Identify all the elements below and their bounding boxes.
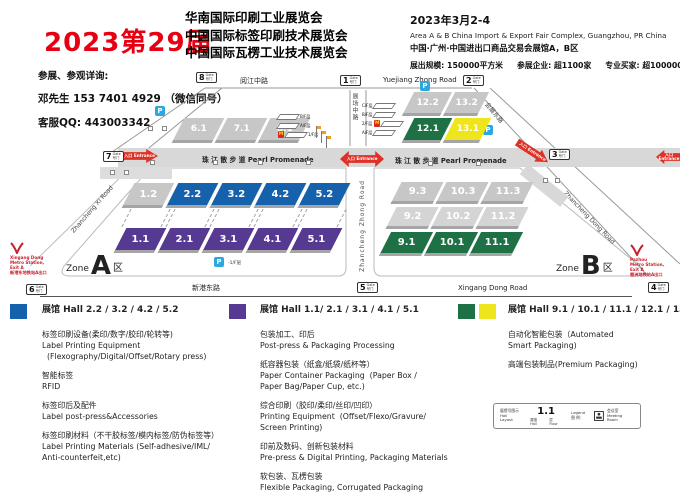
facility-icon	[213, 160, 218, 165]
gate-4: 4Gate号门	[648, 282, 669, 293]
flag-icon	[316, 126, 317, 138]
metro-icon	[10, 242, 24, 254]
facility-icon	[555, 178, 560, 183]
meeting-room-icon	[594, 411, 604, 421]
expo-titles: 华南国际印刷工业展览会 中国国际标签印刷技术展览会 中国国际瓦楞工业技术展览会	[185, 9, 348, 62]
floor-stack-icon: B/F层 A/F层 M1/F层	[278, 113, 318, 138]
gate-6: 6Gate号门	[26, 284, 47, 295]
facility-icon	[110, 170, 115, 175]
facility-icon	[306, 160, 311, 165]
floor-slab	[372, 130, 396, 136]
facility-icon	[162, 126, 167, 131]
legend-item: 软包装、瓦楞包装Flexible Packaging, Corrugated P…	[260, 471, 455, 493]
gate-5: 5Gate号门	[357, 282, 378, 293]
road-zhanchang-zhong: 展场中路	[350, 93, 359, 121]
gate-1: 1Gate号门	[340, 75, 361, 86]
facility-icon	[476, 161, 481, 166]
facility-icon	[428, 161, 433, 166]
zone-a-label: ZoneA区	[66, 256, 123, 277]
swatch-purple	[229, 304, 246, 319]
legend-title: 展馆 Hall 2.2 / 3.2 / 4.2 / 5.2	[42, 305, 227, 316]
parking-icon: P	[155, 106, 165, 116]
promenade-label-east: 珠 江 散 步 道 Pearl Promenade	[395, 155, 507, 165]
parking-icon: P	[214, 257, 224, 267]
hall-key-caption: 展馆号图示 Hall Layout	[500, 409, 521, 423]
meeting-room-key: 会议室 Meeting Room	[594, 409, 634, 423]
floor-slab	[276, 114, 300, 120]
floor-stack-icon: C/F层 B/F层 2/F层M A/F层	[362, 102, 402, 136]
venue-map: 阅江中路 Yuejiang Zhong Road 展场中路 会展东路 Zhanc…	[0, 68, 680, 300]
parking-icon: P	[420, 81, 430, 91]
legend-item: 自动化智能包装（AutomatedSmart Packaging)	[508, 329, 673, 351]
floor-slab	[372, 103, 396, 109]
road-zhancheng-zhong: Zhancheng Zhong Road	[359, 180, 366, 272]
floor-slab	[380, 121, 404, 127]
legend-column-label: 展馆 Hall 2.2 / 3.2 / 4.2 / 5.2 标签印刷设备(柔印/…	[42, 305, 227, 471]
flag-icon	[321, 131, 322, 143]
expo-title-2: 中国国际标签印刷技术展览会	[185, 27, 348, 45]
legend-item: 标签印刷设备(柔印/数字/胶印/轮转等)Label Printing Equip…	[42, 329, 227, 362]
expo-title-1: 华南国际印刷工业展览会	[185, 9, 348, 27]
facility-icon	[150, 160, 155, 165]
legend-item: 标签印刷材料（不干胶标签/模内标签/防伪标签等）Label Printing M…	[42, 430, 227, 463]
legend-title: 展馆 Hall 1.1/ 2.1 / 3.1 / 4.1 / 5.1	[260, 305, 455, 316]
legend-item: 印前及数码、创新包装材料Pre-press & Digital Printing…	[260, 441, 455, 463]
hall-key-legend-label: Legend 图 例：	[571, 411, 585, 420]
floor-slab	[372, 112, 396, 118]
metro-icon	[630, 244, 644, 256]
facility-icon	[543, 178, 548, 183]
facility-icon	[124, 170, 129, 175]
floor-slab	[276, 123, 300, 129]
road-xingang-cn: 新港东路	[192, 283, 220, 293]
legend-item: 综合印刷（胶印/柔印/丝印/凹印）Printing Equipment (Off…	[260, 400, 455, 433]
road-xingang-en: Xingang Dong Road	[458, 284, 527, 292]
flag-icon	[326, 136, 327, 148]
gate-7: 7Gate号门	[103, 151, 124, 162]
legend-title: 展馆 Hall 9.1 / 10.1 / 11.1 / 12.1 / 13.1	[508, 305, 673, 316]
legend-item: 标签印后及配件Label post-press&Accessories	[42, 400, 227, 422]
venue-chinese: 中国·广州·中国进出口商品交易会展馆A，B区	[410, 42, 672, 54]
gate-8: 8Gate号门	[196, 72, 217, 83]
road-yuejiang-cn: 阅江中路	[240, 76, 268, 86]
swatch-yellow	[479, 304, 496, 319]
legend-item: 包装加工、印后Post-press & Packaging Processing	[260, 329, 455, 351]
hall-number-key: 展馆号图示 Hall Layout 1.1 展馆 Hall层 Floor Leg…	[493, 403, 641, 429]
legend-divider	[40, 296, 632, 297]
hall-key-sample: 1.1 展馆 Hall层 Floor	[530, 407, 562, 426]
event-date: 2023年3月2-4	[410, 12, 672, 28]
legend-column-packaging: 展馆 Hall 1.1/ 2.1 / 3.1 / 4.1 / 5.1 包装加工、…	[260, 305, 455, 501]
legend-item: 高端包装制品(Premium Packaging)	[508, 359, 673, 370]
event-info: 2023年3月2-4 Area A & B China Import & Exp…	[410, 12, 672, 71]
parking-floor-note: -1/F层	[228, 260, 241, 266]
legend-item: 纸容器包装（纸盒/纸袋/纸杯等）Paper Container Packagin…	[260, 359, 455, 392]
gate-3: 3Gate号门	[549, 149, 570, 160]
swatch-green	[458, 304, 475, 319]
expo-title-3: 中国国际瓦楞工业技术展览会	[185, 44, 348, 62]
zone-b-label: ZoneB区	[556, 256, 613, 277]
legend-column-smart-packaging: 展馆 Hall 9.1 / 10.1 / 11.1 / 12.1 / 13.1 …	[508, 305, 673, 378]
floor-slab	[284, 132, 308, 138]
swatch-blue	[10, 304, 27, 319]
facility-icon	[148, 126, 153, 131]
metro-station-xingangdong: Xingang Dong Metro Station, Exit A 新港东地铁…	[10, 242, 72, 275]
facility-icon	[258, 160, 263, 165]
metro-station-pazhou: Pazhou Metro Station, Exit A 琶洲地铁站A出口	[630, 244, 680, 277]
venue-english: Area A & B China Import & Export Fair Co…	[410, 31, 672, 40]
legend-item: 智能标签RFID	[42, 370, 227, 392]
gate-2: 2Gate号门	[463, 75, 484, 86]
